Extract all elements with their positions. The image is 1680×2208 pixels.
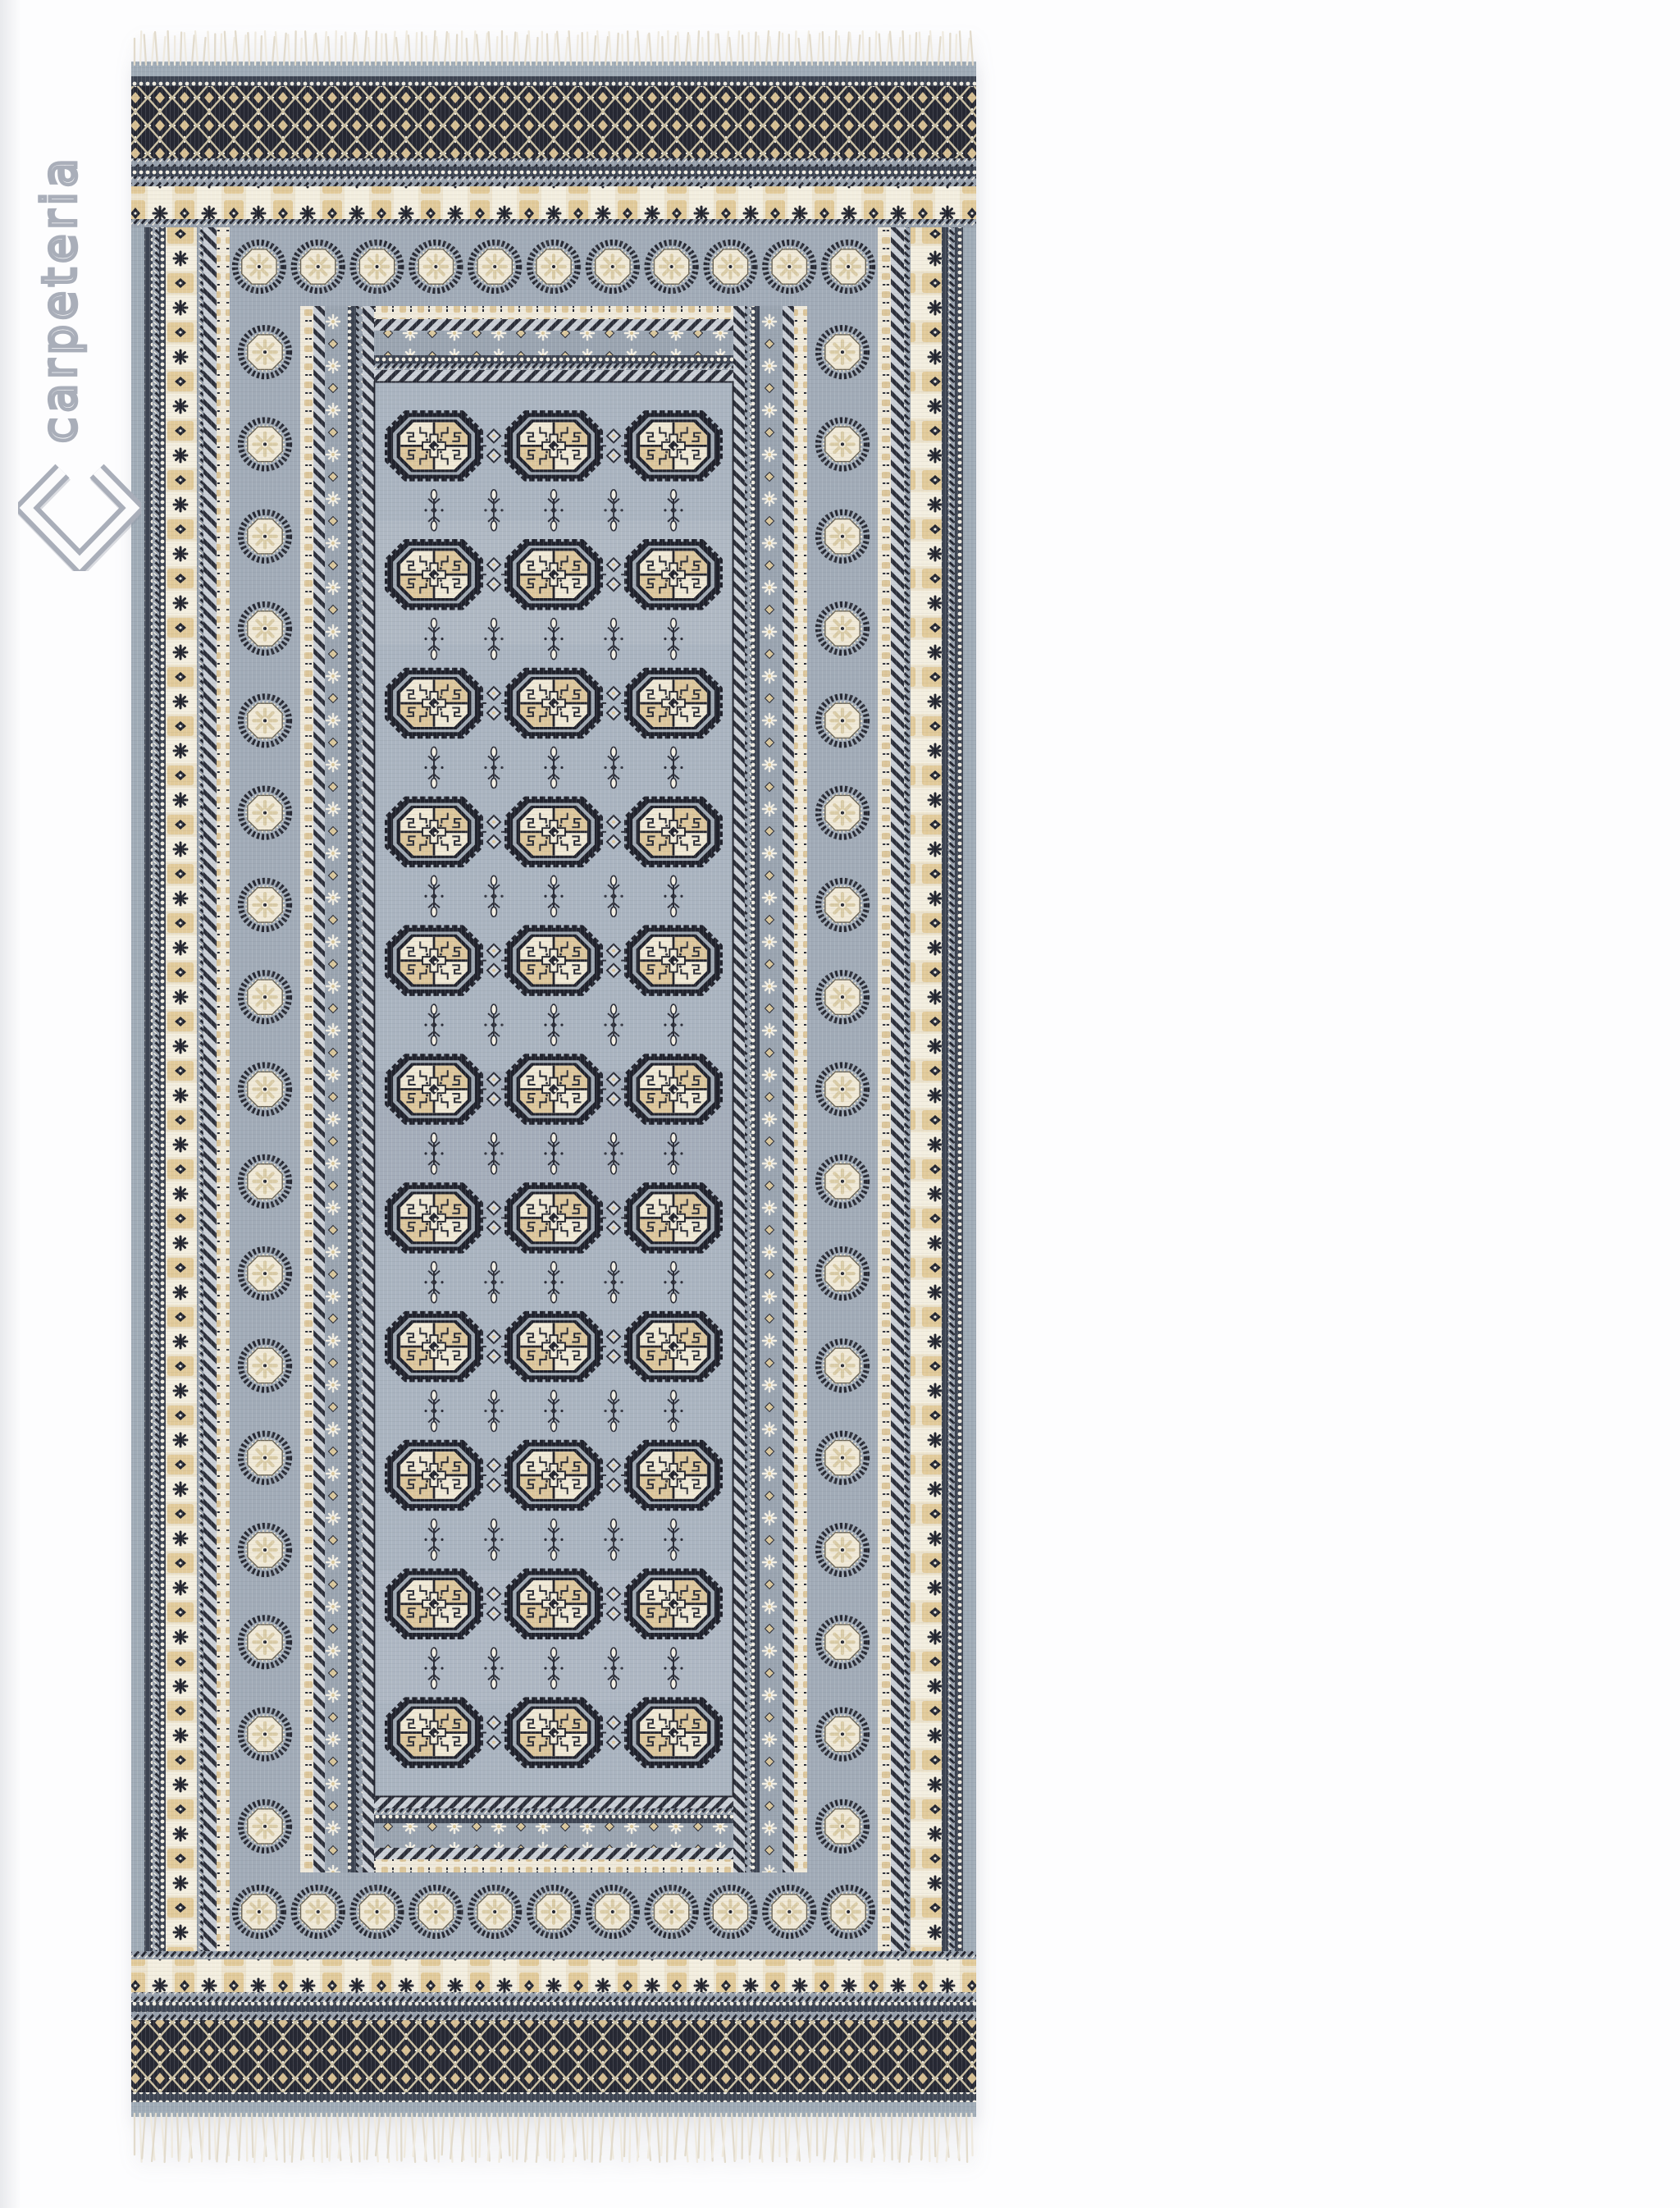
rug-weave-texture	[131, 62, 976, 2117]
rug-photo	[0, 0, 1680, 2208]
rug-fringe-top	[135, 31, 973, 65]
photo-canvas: carpeteria	[0, 0, 1680, 2208]
rug-fringe-bottom	[135, 2114, 973, 2162]
